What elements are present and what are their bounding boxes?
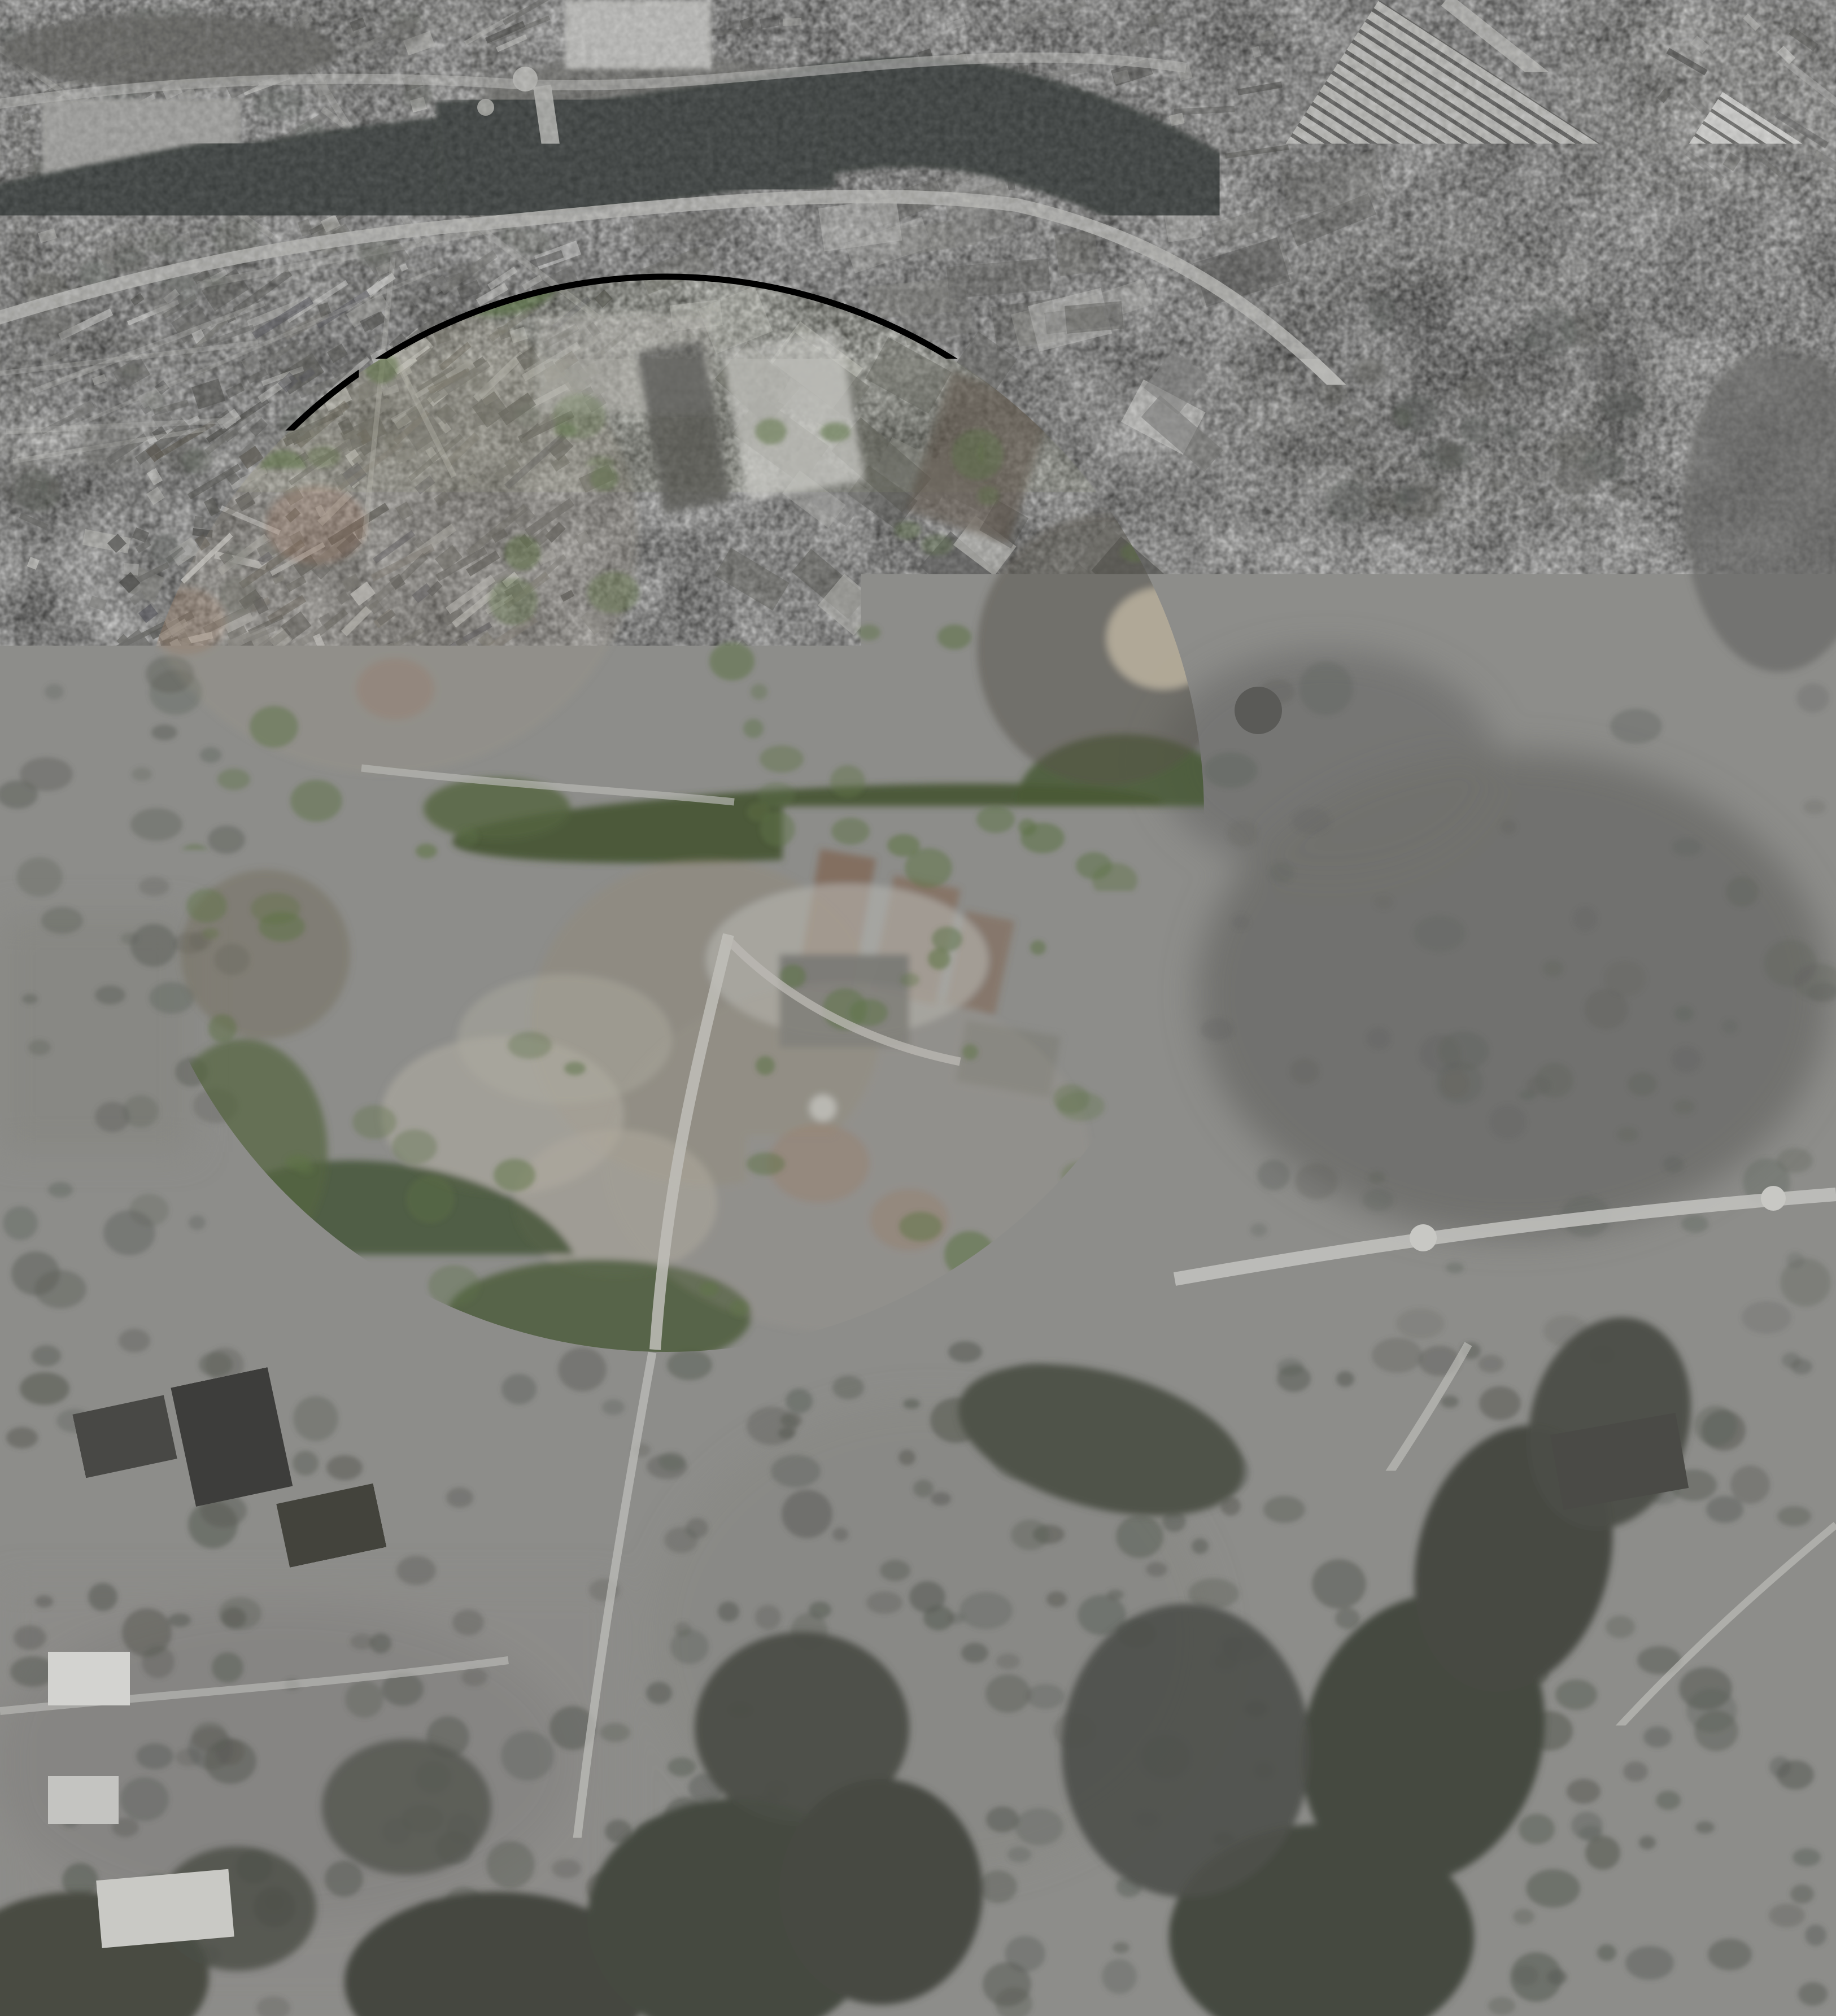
svg-text:PROJECT ZONE: PROJECT ZONE (1220, 495, 1498, 536)
svg-text:MORCHAMPS PARK: MORCHAMPS PARK (664, 1155, 963, 1192)
svg-text:SERAING STATION: SERAING STATION (664, 847, 1002, 892)
svg-text:BERNARD SERIN PARK: BERNARD SERIN PARK (560, 387, 893, 423)
svg-text:MARÊT PARK: MARÊT PARK (465, 644, 663, 683)
